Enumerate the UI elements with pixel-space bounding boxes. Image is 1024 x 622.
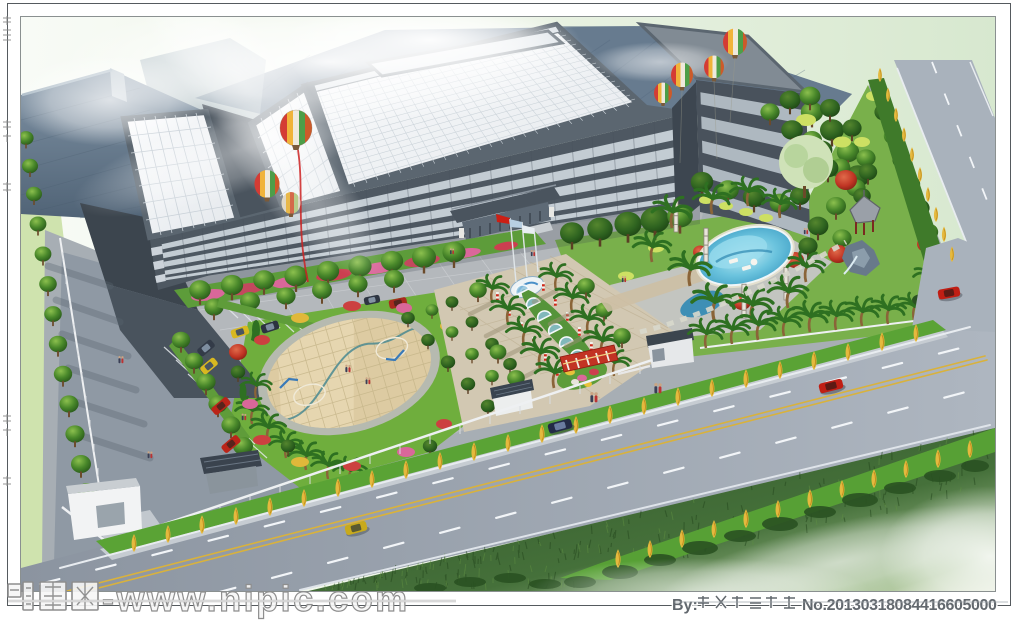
svg-text:By:: By: — [672, 597, 698, 614]
svg-text:No.20130318084416605000: No.20130318084416605000 — [802, 597, 997, 614]
svg-text:-www.nipic.com: -www.nipic.com — [102, 578, 410, 619]
